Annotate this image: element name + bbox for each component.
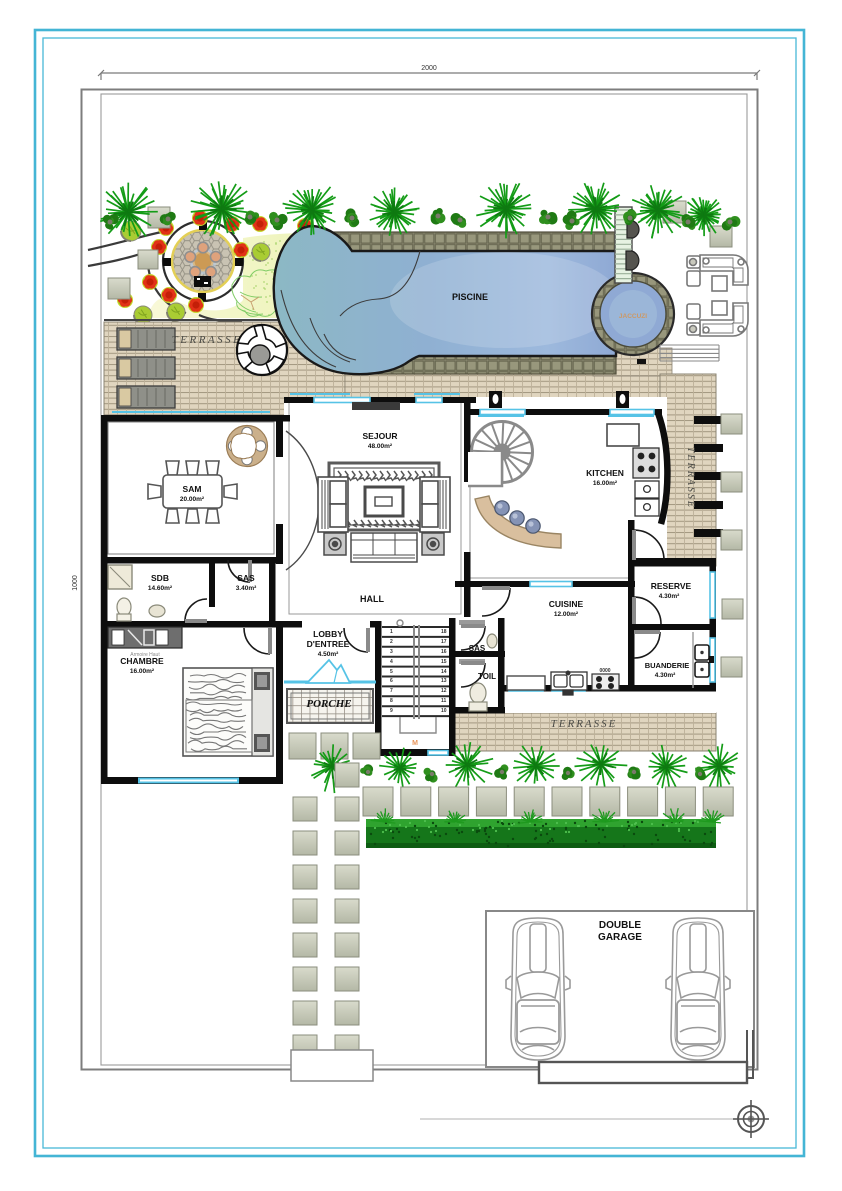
svg-text:16.00m²: 16.00m² <box>593 480 618 487</box>
svg-text:4: 4 <box>390 659 393 665</box>
svg-text:2000: 2000 <box>421 65 437 72</box>
svg-text:14.60m²: 14.60m² <box>148 585 173 592</box>
svg-text:7: 7 <box>390 688 393 694</box>
svg-text:16: 16 <box>441 649 447 655</box>
svg-text:CUISINE: CUISINE <box>549 599 584 609</box>
svg-text:14: 14 <box>441 669 447 675</box>
svg-text:8: 8 <box>390 698 393 704</box>
svg-text:13: 13 <box>441 678 447 684</box>
svg-text:RESERVE: RESERVE <box>651 581 692 591</box>
svg-text:TERRASSE: TERRASSE <box>172 334 243 346</box>
svg-text:17: 17 <box>441 639 447 645</box>
svg-text:3: 3 <box>390 649 393 655</box>
svg-text:HALL: HALL <box>360 594 384 604</box>
svg-text:SAS: SAS <box>237 573 255 583</box>
svg-text:TERRASSE: TERRASSE <box>551 718 618 730</box>
svg-text:SAS: SAS <box>469 644 486 653</box>
svg-text:TOIL: TOIL <box>478 672 496 681</box>
svg-text:11: 11 <box>441 698 447 704</box>
svg-text:SEJOUR: SEJOUR <box>363 431 398 441</box>
svg-text:18: 18 <box>441 629 447 635</box>
svg-text:SDB: SDB <box>151 573 169 583</box>
svg-text:LOBBY: LOBBY <box>313 629 343 639</box>
svg-text:M: M <box>412 740 418 747</box>
svg-text:16.00m²: 16.00m² <box>130 668 155 675</box>
svg-text:PORCHE: PORCHE <box>306 698 351 710</box>
svg-text:CHAMBRE: CHAMBRE <box>120 656 164 666</box>
svg-text:20.00m²: 20.00m² <box>180 496 205 503</box>
svg-text:6: 6 <box>390 678 393 684</box>
svg-text:4.30m²: 4.30m² <box>659 593 680 600</box>
svg-text:PISCINE: PISCINE <box>452 292 488 302</box>
svg-text:D'ENTREE: D'ENTREE <box>307 639 350 649</box>
svg-text:48.00m²: 48.00m² <box>368 443 393 450</box>
svg-text:DOUBLE: DOUBLE <box>599 920 642 931</box>
svg-text:3.40m²: 3.40m² <box>236 585 257 592</box>
svg-text:4.30m²: 4.30m² <box>655 672 676 679</box>
svg-text:1000: 1000 <box>72 575 79 591</box>
svg-text:10: 10 <box>441 708 447 714</box>
svg-text:5: 5 <box>390 669 393 675</box>
svg-text:BUANDERIE: BUANDERIE <box>645 661 690 670</box>
svg-text:TERRASSE: TERRASSE <box>685 447 696 509</box>
svg-text:JACCUZI: JACCUZI <box>619 313 647 320</box>
svg-text:0000: 0000 <box>599 668 610 674</box>
svg-text:1: 1 <box>390 629 393 635</box>
svg-text:12: 12 <box>441 688 447 694</box>
svg-text:SAM: SAM <box>183 484 202 494</box>
svg-text:GARAGE: GARAGE <box>598 932 642 943</box>
svg-text:15: 15 <box>441 659 447 665</box>
svg-text:KITCHEN: KITCHEN <box>586 468 624 478</box>
svg-text:12.00m²: 12.00m² <box>554 611 579 618</box>
svg-text:9: 9 <box>390 708 393 714</box>
svg-text:2: 2 <box>390 639 393 645</box>
svg-text:4.50m²: 4.50m² <box>318 651 339 658</box>
